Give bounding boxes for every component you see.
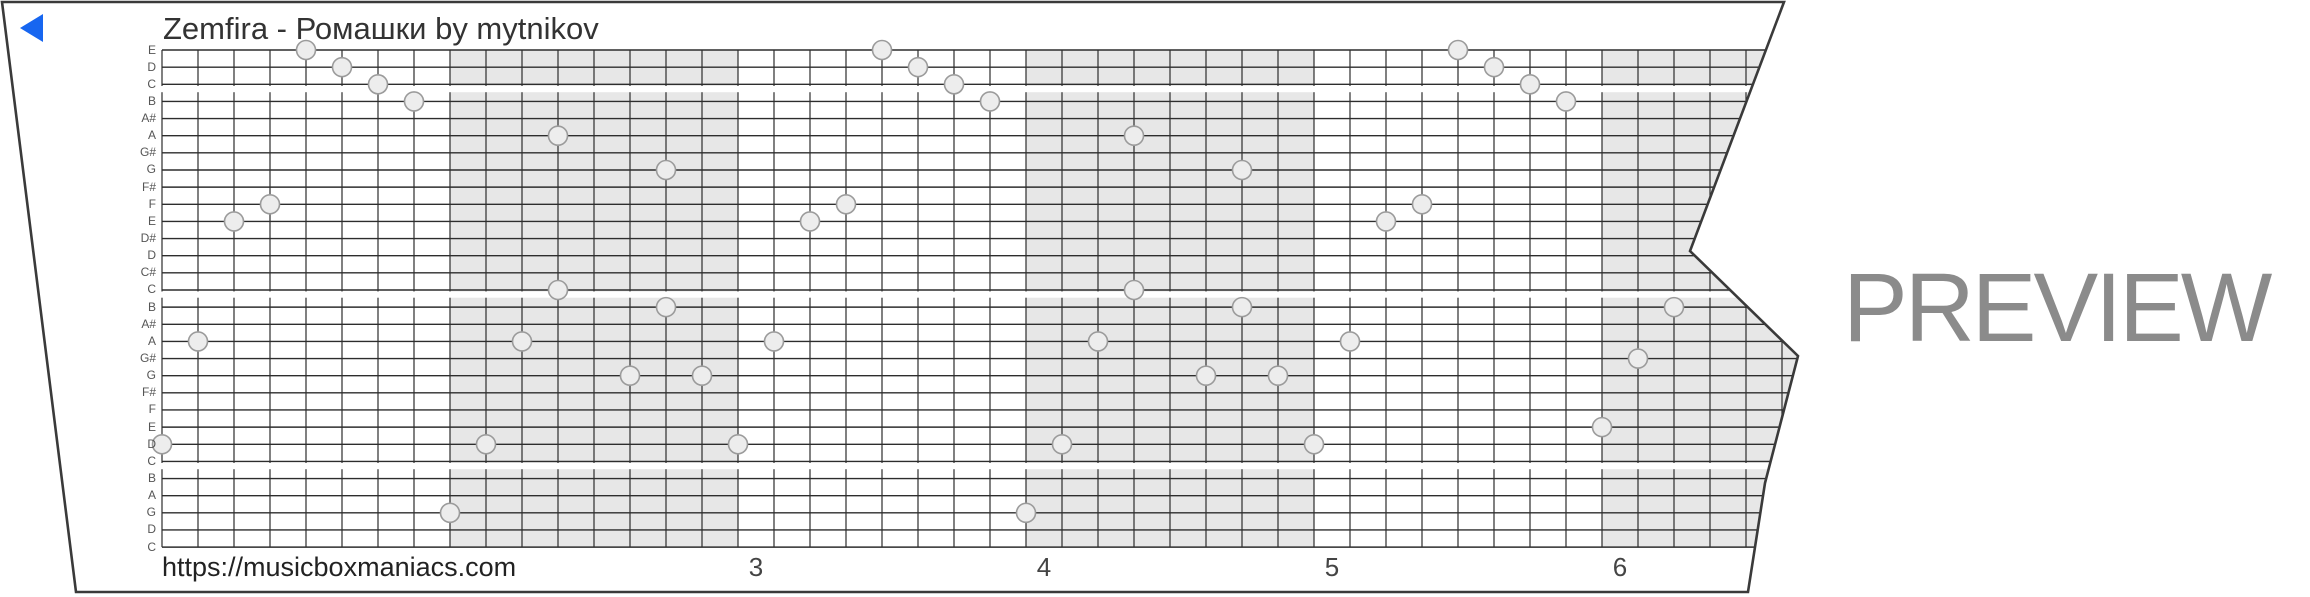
octave-gap-stripe	[161, 463, 1803, 469]
note-circle	[801, 212, 820, 231]
note-circle	[1593, 418, 1612, 437]
note-circle	[1521, 75, 1540, 94]
note-circle	[153, 435, 172, 454]
note-circle	[1053, 435, 1072, 454]
note-circle	[621, 366, 640, 385]
note-circle	[1485, 58, 1504, 77]
note-circle	[261, 195, 280, 214]
note-circle	[441, 503, 460, 522]
note-circle	[405, 92, 424, 111]
note-circle	[549, 280, 568, 299]
back-icon[interactable]	[20, 14, 43, 42]
note-circle	[909, 58, 928, 77]
note-circle	[225, 212, 244, 231]
note-circle	[297, 41, 316, 60]
note-circle	[477, 435, 496, 454]
note-circle	[1125, 280, 1144, 299]
octave-gap-stripe	[161, 292, 1803, 298]
note-circle	[549, 126, 568, 145]
note-circle	[1305, 435, 1324, 454]
note-circle	[1089, 332, 1108, 351]
note-circle	[729, 435, 748, 454]
note-circle	[1125, 126, 1144, 145]
note-circle	[1017, 503, 1036, 522]
note-circle	[945, 75, 964, 94]
note-circle	[765, 332, 784, 351]
octave-gap-stripe	[161, 86, 1803, 92]
note-circle	[837, 195, 856, 214]
note-circle	[981, 92, 1000, 111]
note-circle	[1233, 298, 1252, 317]
note-circle	[1341, 332, 1360, 351]
music-box-preview-page: Zemfira - Ромашки by mytnikov https://mu…	[0, 0, 2310, 597]
note-circle	[1665, 298, 1684, 317]
note-circle	[657, 298, 676, 317]
note-circle	[693, 366, 712, 385]
note-circle	[369, 75, 388, 94]
note-circle	[873, 41, 892, 60]
note-circle	[1269, 366, 1288, 385]
note-circle	[1377, 212, 1396, 231]
note-circle	[189, 332, 208, 351]
music-strip	[0, 0, 2310, 597]
note-circle	[1233, 160, 1252, 179]
note-circle	[657, 160, 676, 179]
note-circle	[1629, 349, 1648, 368]
note-circle	[1413, 195, 1432, 214]
note-circle	[513, 332, 532, 351]
note-circle	[1449, 41, 1468, 60]
note-circle	[333, 58, 352, 77]
note-circle	[1197, 366, 1216, 385]
note-circle	[1557, 92, 1576, 111]
